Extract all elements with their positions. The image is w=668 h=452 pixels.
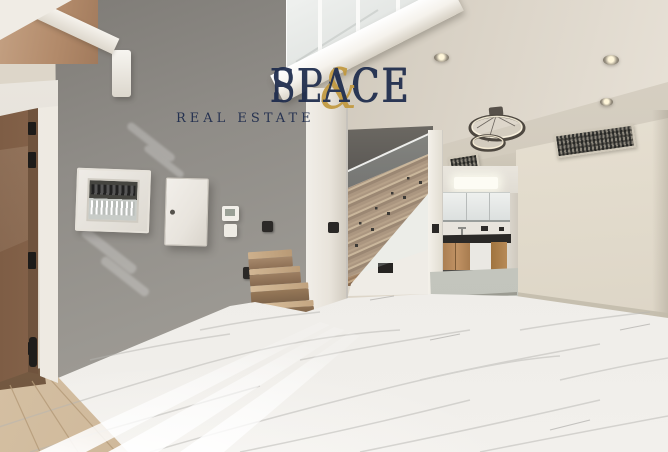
- brand-tagline: REAL ESTATE: [176, 111, 315, 126]
- light-switch: [432, 224, 439, 233]
- door-hinge: [28, 152, 36, 168]
- breaker-grid: [91, 200, 135, 216]
- access-panel: [164, 177, 209, 246]
- breaker-rows: [91, 184, 135, 196]
- brand-wordmark: SPACE&PLACE: [206, 60, 475, 116]
- light-switch: [262, 221, 273, 232]
- cabinet-wood-panel: [491, 242, 507, 271]
- access-panel-latch: [170, 210, 175, 215]
- electrical-panel: [75, 168, 151, 234]
- recessed-downlight: [600, 98, 613, 106]
- sunlight-streaks: [0, 300, 668, 452]
- door-hinge: [28, 252, 36, 269]
- power-socket: [499, 227, 504, 231]
- recessed-downlight: [603, 55, 619, 65]
- base-cabinet-wood: [441, 243, 470, 272]
- kitchen-ceiling-light: [454, 177, 498, 189]
- wall-light-fixture: [112, 50, 131, 97]
- door-handle: [29, 337, 37, 367]
- base-cabinet-white: [470, 243, 491, 273]
- listing-photo: SPACE&PLACE REAL ESTATE: [0, 0, 668, 452]
- thermostat: [222, 206, 239, 221]
- light-switch: [328, 222, 339, 233]
- brand-second: PLACE: [269, 60, 411, 114]
- thermostat-screen: [225, 209, 235, 216]
- wall-sensor: [224, 224, 237, 237]
- electrical-panel-window: [86, 178, 139, 223]
- door-hinge: [28, 122, 36, 135]
- faucet: [461, 227, 463, 236]
- power-socket: [481, 226, 488, 231]
- agency-watermark: SPACE&PLACE REAL ESTATE: [168, 60, 513, 144]
- upper-cabinets: [443, 192, 510, 222]
